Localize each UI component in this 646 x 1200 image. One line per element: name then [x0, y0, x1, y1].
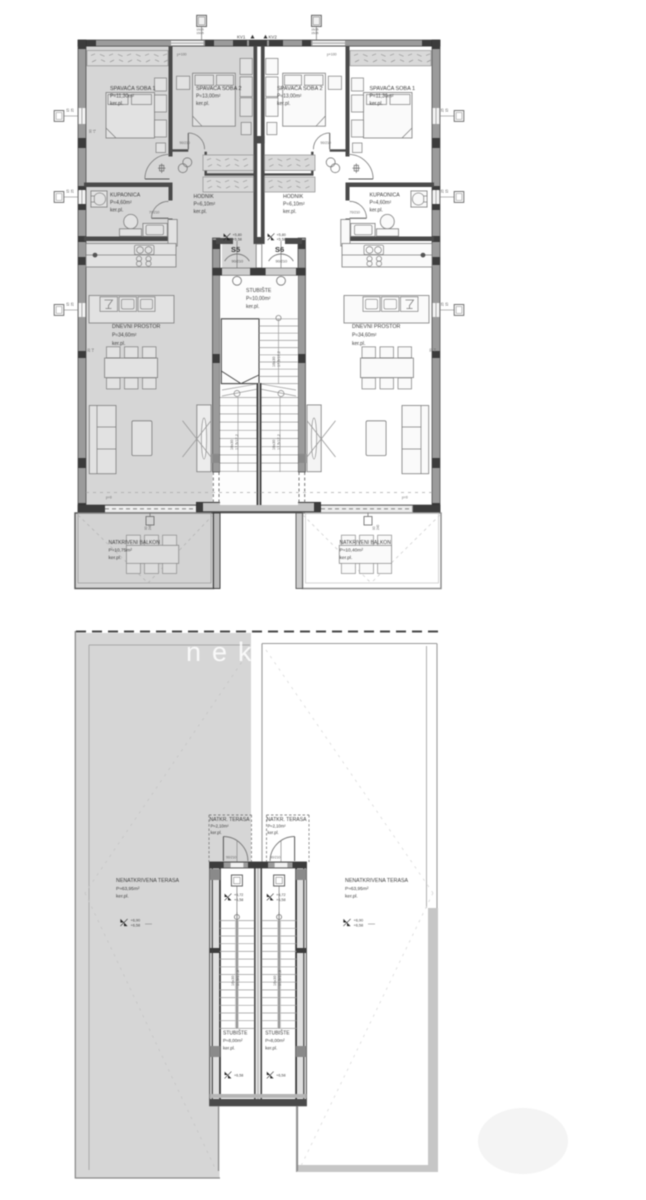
- svg-text:25: 25: [71, 189, 75, 193]
- svg-text:P≈2,10m²: P≈2,10m²: [211, 824, 230, 829]
- svg-text:p=0: p=0: [106, 496, 112, 500]
- svg-text:15: 15: [445, 302, 449, 306]
- svg-text:S6: S6: [275, 245, 284, 254]
- svg-text:16x30: 16x30: [272, 357, 276, 367]
- svg-text:+6,90: +6,90: [354, 919, 364, 923]
- svg-text:ker.pl.: ker.pl.: [211, 830, 222, 835]
- svg-text:ker.pl.: ker.pl.: [265, 1046, 277, 1051]
- svg-text:n: n: [186, 637, 201, 667]
- svg-text:+1: +1: [93, 129, 97, 133]
- svg-text:P≈13,00m²: P≈13,00m²: [196, 94, 221, 100]
- svg-text:P≈8,00m²: P≈8,00m²: [223, 1038, 243, 1043]
- svg-text:25: 25: [441, 189, 445, 193]
- svg-text:S5: S5: [231, 245, 240, 254]
- svg-text:+6,58: +6,58: [276, 1074, 285, 1078]
- svg-text:25: 25: [441, 302, 445, 306]
- svg-text:15: 15: [66, 108, 70, 112]
- svg-text:P≈8,00m²: P≈8,00m²: [265, 1038, 285, 1043]
- svg-text:16x30: 16x30: [231, 976, 235, 986]
- svg-text:ker.pl.: ker.pl.: [352, 341, 365, 347]
- svg-text:15: 15: [445, 189, 449, 193]
- svg-text:90/210: 90/210: [321, 141, 331, 145]
- svg-text:70/210: 70/210: [350, 211, 360, 215]
- svg-text:25: 25: [441, 108, 445, 112]
- svg-text:+6,90: +6,90: [131, 919, 141, 923]
- svg-text:NATKRIVENI BALKON: NATKRIVENI BALKON: [109, 540, 161, 546]
- svg-text:17,5/17,2: 17,5/17,2: [277, 434, 281, 450]
- svg-text:90/210: 90/210: [232, 260, 244, 264]
- svg-text:NENATKRIVENA TERASA: NENATKRIVENA TERASA: [116, 878, 180, 884]
- svg-text:ker.pl.: ker.pl.: [112, 341, 125, 347]
- svg-text:ker.pl.: ker.pl.: [116, 894, 129, 900]
- svg-text:70/210: 70/210: [149, 211, 159, 215]
- svg-text:P≈4,60m²: P≈4,60m²: [370, 200, 392, 206]
- svg-text:ker.pl.: ker.pl.: [340, 555, 353, 561]
- svg-text:NENATKRIVENA TERASA: NENATKRIVENA TERASA: [345, 878, 409, 884]
- svg-text:16x30: 16x30: [272, 440, 276, 450]
- svg-text:+5,58: +5,58: [233, 238, 242, 242]
- svg-text:90/210: 90/210: [226, 856, 236, 860]
- svg-text:17,5/17,3: 17,5/17,3: [236, 970, 240, 986]
- svg-text:ker.pl.: ker.pl.: [246, 304, 259, 310]
- svg-text:+6,58: +6,58: [276, 898, 285, 902]
- svg-text:NATKR. TERASA: NATKR. TERASA: [210, 817, 251, 823]
- svg-text:+5,58: +5,58: [277, 238, 286, 242]
- svg-text:+4: +4: [433, 348, 437, 352]
- svg-text:KV1: KV1: [237, 34, 246, 39]
- svg-text:15: 15: [445, 108, 449, 112]
- svg-text:SPAVAĆA SOBA 2: SPAVAĆA SOBA 2: [277, 85, 323, 92]
- svg-text:+6,72: +6,72: [234, 893, 243, 897]
- svg-text:p+100: p+100: [327, 53, 337, 57]
- svg-text:NATKRIVENI BALKON: NATKRIVENI BALKON: [340, 540, 392, 546]
- svg-text:k: k: [238, 637, 252, 667]
- svg-text:SPAVAĆA SOBA 2: SPAVAĆA SOBA 2: [196, 85, 242, 92]
- svg-text:16x30: 16x30: [230, 440, 234, 450]
- svg-text:P≈10,75m²: P≈10,75m²: [109, 548, 133, 554]
- svg-text:e: e: [212, 637, 227, 667]
- svg-text:STUBIŠTE: STUBIŠTE: [246, 287, 272, 294]
- svg-text:15: 15: [66, 189, 70, 193]
- svg-text:16x30: 16x30: [273, 976, 277, 986]
- svg-text:ker.pl.: ker.pl.: [194, 209, 207, 215]
- svg-text:KUPAONICA: KUPAONICA: [370, 193, 401, 199]
- svg-text:17,5/17,2: 17,5/17,2: [235, 434, 239, 450]
- svg-text:+5,80: +5,80: [233, 233, 242, 237]
- svg-text:+6,58: +6,58: [131, 924, 141, 928]
- svg-text:ker.pl.: ker.pl.: [277, 101, 290, 107]
- svg-text:17,5/17,2: 17,5/17,2: [277, 351, 281, 367]
- svg-text:90/210: 90/210: [276, 260, 288, 264]
- svg-text:15/25: 15/25: [197, 31, 205, 35]
- svg-text:+6,58: +6,58: [354, 924, 364, 928]
- svg-text:P≈10,40m²: P≈10,40m²: [340, 548, 364, 554]
- svg-text:P≈34,60m²: P≈34,60m²: [112, 333, 137, 339]
- svg-text:ker.pl.: ker.pl.: [345, 894, 358, 900]
- svg-text:15/25: 15/25: [311, 31, 319, 35]
- svg-text:ker.pl.: ker.pl.: [109, 555, 122, 561]
- svg-text:P≈6,10m²: P≈6,10m²: [194, 202, 216, 208]
- svg-text:ker.pl.: ker.pl.: [268, 830, 279, 835]
- svg-text:25: 25: [71, 302, 75, 306]
- svg-text:P≈63,95m²: P≈63,95m²: [345, 886, 369, 892]
- svg-text:ker.pl.: ker.pl.: [110, 101, 123, 107]
- svg-text:STUBIŠTE: STUBIŠTE: [223, 1030, 248, 1037]
- svg-text:ker.pl.: ker.pl.: [370, 208, 383, 214]
- svg-text:+4: +4: [91, 348, 95, 352]
- svg-text:P≈11,30m²: P≈11,30m²: [110, 94, 134, 100]
- svg-text:DNEVNI PROSTOR: DNEVNI PROSTOR: [352, 324, 401, 330]
- svg-text:P≈10,00m²: P≈10,00m²: [246, 296, 271, 302]
- svg-text:+6,58: +6,58: [234, 1074, 243, 1078]
- svg-text:HODNIK: HODNIK: [194, 194, 215, 200]
- svg-text:STUBIŠTE: STUBIŠTE: [265, 1030, 290, 1037]
- svg-text:p=0: p=0: [402, 496, 408, 500]
- svg-text:P≈6,10m²: P≈6,10m²: [283, 202, 305, 208]
- svg-text:KV2: KV2: [269, 34, 278, 39]
- svg-text:P≈13,00m²: P≈13,00m²: [277, 94, 302, 100]
- svg-text:+6,58: +6,58: [234, 898, 243, 902]
- svg-text:ker.pl.: ker.pl.: [283, 209, 296, 215]
- svg-text:+5,80: +5,80: [277, 233, 286, 237]
- svg-text:15: 15: [66, 302, 70, 306]
- svg-text:NATKR. TERASA: NATKR. TERASA: [267, 817, 308, 823]
- svg-text:25: 25: [71, 108, 75, 112]
- svg-text:HODNIK: HODNIK: [283, 194, 304, 200]
- svg-text:17,5/17,3: 17,5/17,3: [278, 970, 282, 986]
- svg-text:P≈2,10m²: P≈2,10m²: [268, 824, 287, 829]
- svg-text:ker.pl.: ker.pl.: [223, 1046, 235, 1051]
- svg-text:90/210: 90/210: [180, 141, 190, 145]
- svg-text:SPAVAĆA SOBA 1: SPAVAĆA SOBA 1: [110, 85, 156, 92]
- svg-text:240: 240: [148, 524, 152, 530]
- svg-text:ker.pl.: ker.pl.: [370, 101, 383, 107]
- svg-text:P≈4,60m²: P≈4,60m²: [110, 200, 132, 206]
- svg-text:KUPAONICA: KUPAONICA: [110, 193, 141, 199]
- svg-text:90/210: 90/210: [270, 856, 280, 860]
- svg-text:ker.pl.: ker.pl.: [196, 101, 209, 107]
- svg-text:240: 240: [376, 524, 380, 530]
- svg-text:+6,72: +6,72: [276, 893, 285, 897]
- svg-text:SPAVAĆA SOBA 1: SPAVAĆA SOBA 1: [370, 85, 416, 92]
- svg-text:DNEVNI PROSTOR: DNEVNI PROSTOR: [112, 324, 161, 330]
- svg-text:p+100: p+100: [177, 53, 187, 57]
- svg-text:ker.pl.: ker.pl.: [110, 208, 123, 214]
- svg-text:P≈34,60m²: P≈34,60m²: [352, 333, 377, 339]
- svg-text:P≈63,95m²: P≈63,95m²: [116, 886, 140, 892]
- svg-text:P≈11,30m²: P≈11,30m²: [370, 94, 394, 100]
